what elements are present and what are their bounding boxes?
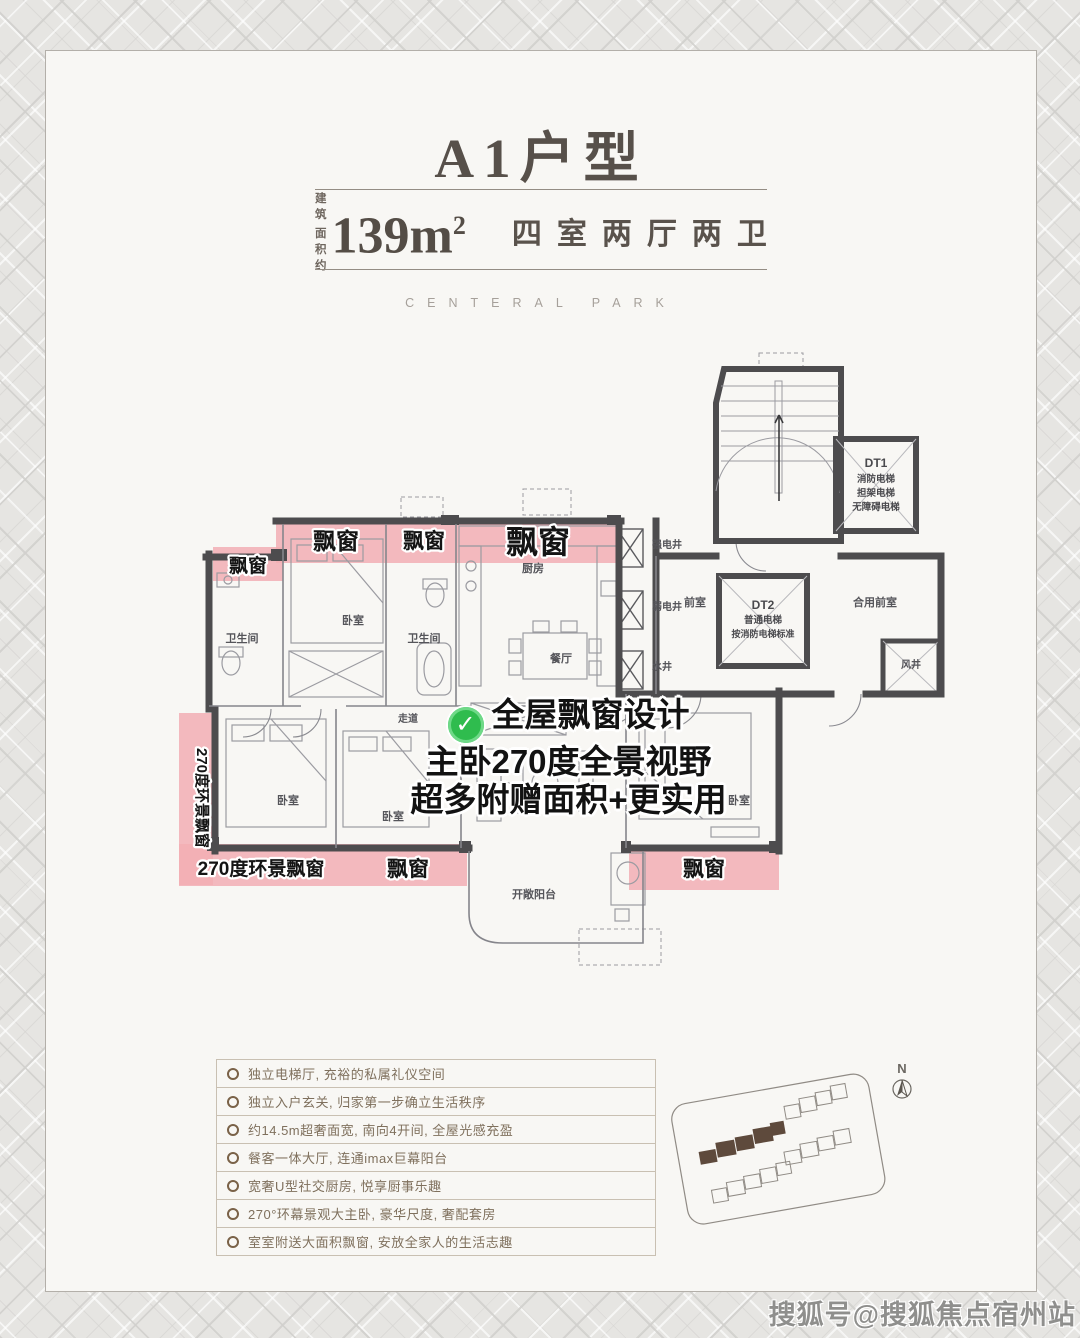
area-prefix-top: 建 筑 — [315, 190, 328, 222]
floor-plan: DT1 消防电梯 担架电梯 无障碍电梯 DT2 普通电梯 按消防电梯标准 — [171, 351, 961, 981]
svg-text:担架电梯: 担架电梯 — [857, 487, 896, 499]
svg-text:强电井: 强电井 — [652, 538, 682, 551]
svg-text:飘窗: 飘窗 — [387, 857, 429, 881]
svg-text:消防电梯: 消防电梯 — [857, 473, 896, 485]
elevator-dt2: DT2 普通电梯 按消防电梯标准 — [719, 576, 807, 666]
svg-text:厨房: 厨房 — [522, 561, 544, 575]
bullet-icon — [227, 1096, 239, 1108]
site-map: N — [664, 1053, 924, 1248]
check-icon: ✓ — [448, 707, 484, 743]
svg-text:无障碍电梯: 无障碍电梯 — [851, 501, 900, 513]
feature-row: 独立入户玄关, 归家第一步确立生活秩序 — [217, 1088, 655, 1116]
elevator-dt1: DT1 消防电梯 担架电梯 无障碍电梯 — [836, 439, 916, 531]
bullet-icon — [227, 1180, 239, 1192]
bullet-icon — [227, 1236, 239, 1248]
highlighted-building — [696, 1121, 789, 1165]
content-card: A1户型 建 筑 面积约 139m2 四室两厅两卫 CENTERAL PARK — [45, 50, 1037, 1292]
svg-text:270度环景飘窗: 270度环景飘窗 — [193, 748, 211, 848]
callout: ✓全屋飘窗设计 主卧270度全景视野 超多附赠面积+更实用 — [341, 696, 796, 819]
svg-text:N: N — [897, 1061, 906, 1076]
svg-text:飘窗: 飘窗 — [403, 529, 445, 553]
svg-text:DT1: DT1 — [865, 456, 888, 470]
compass-icon: N — [893, 1061, 911, 1098]
svg-text:270度环景飘窗: 270度环景飘窗 — [198, 857, 325, 880]
svg-text:飘窗: 飘窗 — [683, 857, 725, 881]
svg-text:水井: 水井 — [651, 660, 672, 673]
page: { "header": { "title": "A1户型", "area_lab… — [0, 0, 1080, 1338]
feature-row: 餐客一体大厅, 连通imax巨幕阳台 — [217, 1144, 655, 1172]
callout-line2: 主卧270度全景视野 — [341, 743, 796, 781]
svg-text:飘窗: 飘窗 — [506, 524, 570, 560]
callout-line3: 超多附赠面积+更实用 — [341, 781, 796, 819]
area-value: 139m2 — [332, 200, 466, 262]
svg-text:合用前室: 合用前室 — [853, 595, 897, 609]
callout-line1: ✓全屋飘窗设计 — [341, 696, 796, 743]
svg-text:飘窗: 飘窗 — [229, 554, 267, 577]
area-prefix: 建 筑 面积约 — [315, 190, 328, 273]
svg-text:弱电井: 弱电井 — [652, 600, 682, 613]
svg-text:普通电梯: 普通电梯 — [744, 614, 783, 626]
bullet-icon — [227, 1152, 239, 1164]
brand-text: CENTERAL PARK — [46, 296, 1036, 310]
svg-text:卫生间: 卫生间 — [226, 631, 259, 645]
svg-text:开敞阳台: 开敞阳台 — [512, 887, 556, 901]
svg-text:飘窗: 飘窗 — [313, 528, 359, 554]
rooms-label: 四室两厅两卫 — [512, 209, 782, 253]
feature-row: 约14.5m超奢面宽, 南向4开间, 全屋光感充盈 — [217, 1116, 655, 1144]
bullet-icon — [227, 1124, 239, 1136]
svg-text:卧室: 卧室 — [342, 613, 364, 627]
header-divider-top — [315, 189, 767, 190]
header-divider-bottom — [315, 269, 767, 270]
svg-text:DT2: DT2 — [752, 598, 775, 612]
svg-text:风井: 风井 — [901, 658, 921, 671]
area-prefix-bottom: 面积约 — [315, 225, 328, 273]
feature-row: 室室附送大面积飘窗, 安放全家人的生活志趣 — [217, 1228, 655, 1255]
svg-text:按消防电梯标准: 按消防电梯标准 — [731, 628, 794, 639]
feature-row: 宽奢U型社交厨房, 悦享厨事乐趣 — [217, 1172, 655, 1200]
feature-row: 独立电梯厅, 充裕的私属礼仪空间 — [217, 1060, 655, 1088]
svg-text:卫生间: 卫生间 — [408, 631, 441, 645]
feature-list: 独立电梯厅, 充裕的私属礼仪空间 独立入户玄关, 归家第一步确立生活秩序 约14… — [216, 1059, 656, 1256]
stairwell — [716, 369, 841, 541]
bullet-icon — [227, 1068, 239, 1080]
watermark: 搜狐号@搜狐焦点宿州站 — [769, 1293, 1076, 1332]
area-row: 建 筑 面积约 139m2 四室两厅两卫 — [315, 201, 767, 261]
bullet-icon — [227, 1208, 239, 1220]
svg-text:前室: 前室 — [684, 595, 706, 609]
svg-text:餐厅: 餐厅 — [549, 651, 572, 665]
feature-row: 270°环幕景观大主卧, 豪华尺度, 奢配套房 — [217, 1200, 655, 1228]
page-title: A1户型 — [46, 113, 1036, 193]
svg-text:卧室: 卧室 — [277, 793, 299, 807]
